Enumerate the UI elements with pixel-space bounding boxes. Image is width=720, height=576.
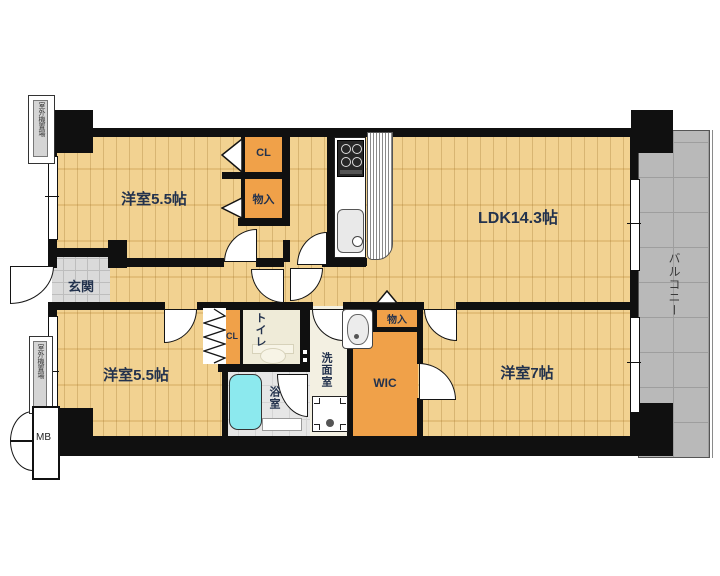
storage-top-door-mark [221, 197, 243, 219]
floorplan-canvas: 室外機置場 室外機置場 洋室5.5帖 LDK14.3帖 洋室5.5帖 洋室7帖 … [0, 0, 720, 576]
closet-bottom-accordion-door [203, 308, 226, 364]
storage-top-label: 物入 [245, 191, 282, 207]
bedroom1-label: 洋室5.5帖 [92, 188, 216, 209]
storage-bottom-label: 物入 [377, 311, 417, 326]
bath-counter [262, 418, 302, 431]
bathroom-label: 浴室 [266, 386, 282, 410]
washbasin-icon [342, 309, 373, 349]
entrance-label: 玄関 [56, 276, 106, 295]
storage-bottom-door-mark [376, 290, 398, 304]
bedroom3-label: 洋室7帖 [464, 362, 590, 383]
toilet-label: トイレ [252, 312, 268, 348]
wall-bottom [52, 436, 636, 456]
outdoor-unit-top-label: 室外機置場 [36, 102, 46, 137]
washroom-label: 洗面室 [318, 352, 334, 388]
washing-machine-pan-icon [312, 396, 348, 432]
kitchen-counter-hatch [367, 132, 393, 260]
meter-box-label: MB [36, 432, 51, 443]
wic-label: WIC [364, 376, 406, 390]
entrance-door [10, 266, 54, 304]
bathtub-icon [229, 374, 262, 430]
ldk-label: LDK14.3帖 [450, 204, 586, 228]
closet-bottom-label: CL [226, 331, 238, 341]
meter-box-door-lower [10, 441, 33, 471]
kitchen-sink-icon [337, 209, 364, 253]
wall-top [52, 128, 636, 137]
balcony-label: バルコニー [666, 252, 683, 317]
outdoor-unit-box-top: 室外機置場 [28, 95, 55, 164]
stove-icon [337, 140, 364, 177]
window-bedroom3-balcony [630, 317, 640, 413]
balcony-outer-line [712, 130, 713, 458]
meter-box [32, 406, 60, 480]
outdoor-unit-bottom-label: 室外機置場 [35, 344, 45, 379]
outdoor-unit-box-bottom: 室外機置場 [29, 336, 53, 414]
meter-box-door-upper [10, 411, 33, 441]
window-ldk-balcony [630, 179, 640, 271]
column-top-left [52, 110, 93, 153]
bedroom2-label: 洋室5.5帖 [74, 364, 198, 385]
closet-top-label: CL [246, 147, 281, 159]
closet-top-door-mark [221, 138, 243, 173]
window-bedroom1-left [48, 156, 58, 240]
